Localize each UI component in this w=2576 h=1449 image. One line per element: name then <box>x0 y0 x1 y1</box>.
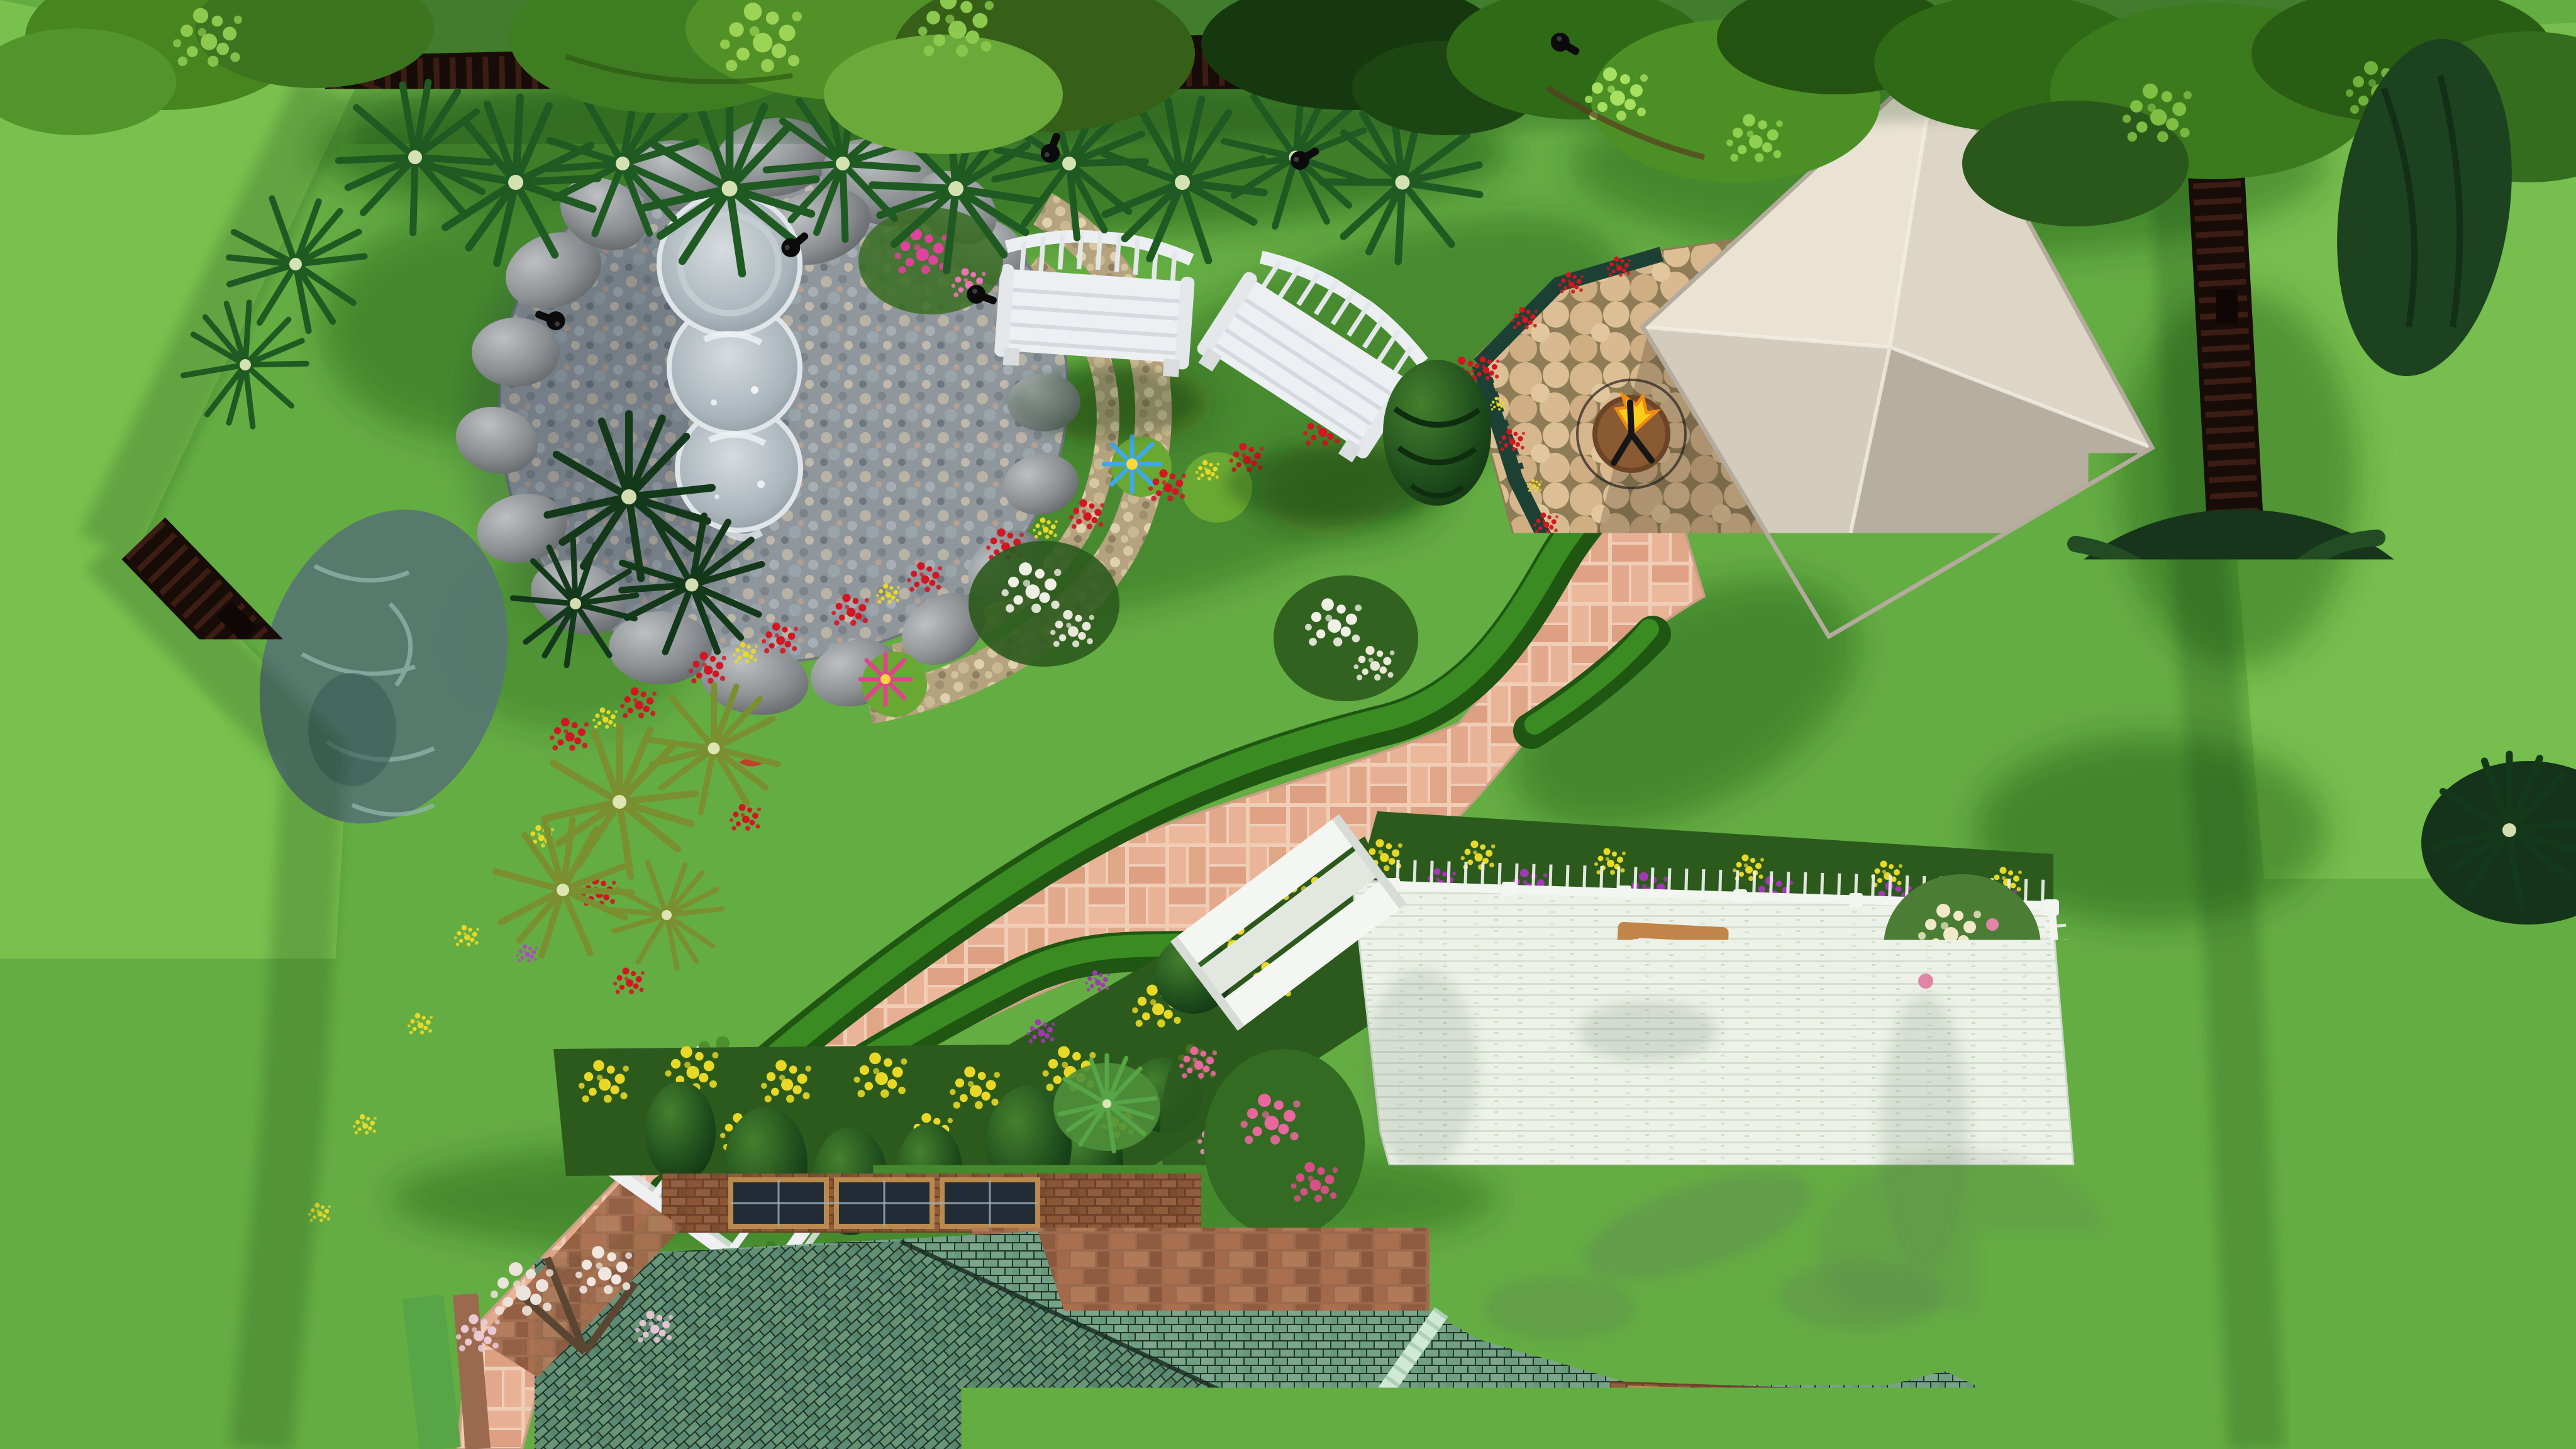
spruce-right[interactable] <box>2025 509 2453 830</box>
white-flower-shrub-1[interactable] <box>969 541 1119 667</box>
fountain[interactable] <box>659 194 801 538</box>
house-windows <box>731 1180 1038 1226</box>
hedge-roof-edge <box>423 1297 440 1449</box>
cone-topiary[interactable] <box>1383 360 1491 506</box>
pink-shrub-deck[interactable] <box>1204 1049 1365 1238</box>
hydrangea-shrub[interactable] <box>1884 874 2041 1019</box>
house-windows-2 <box>1629 1388 1876 1424</box>
landscape-render <box>0 0 2576 1449</box>
patio-table[interactable] <box>1601 1102 1740 1270</box>
white-flower-shrub-2[interactable] <box>1274 575 1418 701</box>
deck-chair-north[interactable] <box>1612 922 1729 1051</box>
potted-plant[interactable] <box>1721 1255 1859 1387</box>
fire-pit[interactable] <box>1577 380 1685 488</box>
render-viewport <box>0 0 2576 1449</box>
